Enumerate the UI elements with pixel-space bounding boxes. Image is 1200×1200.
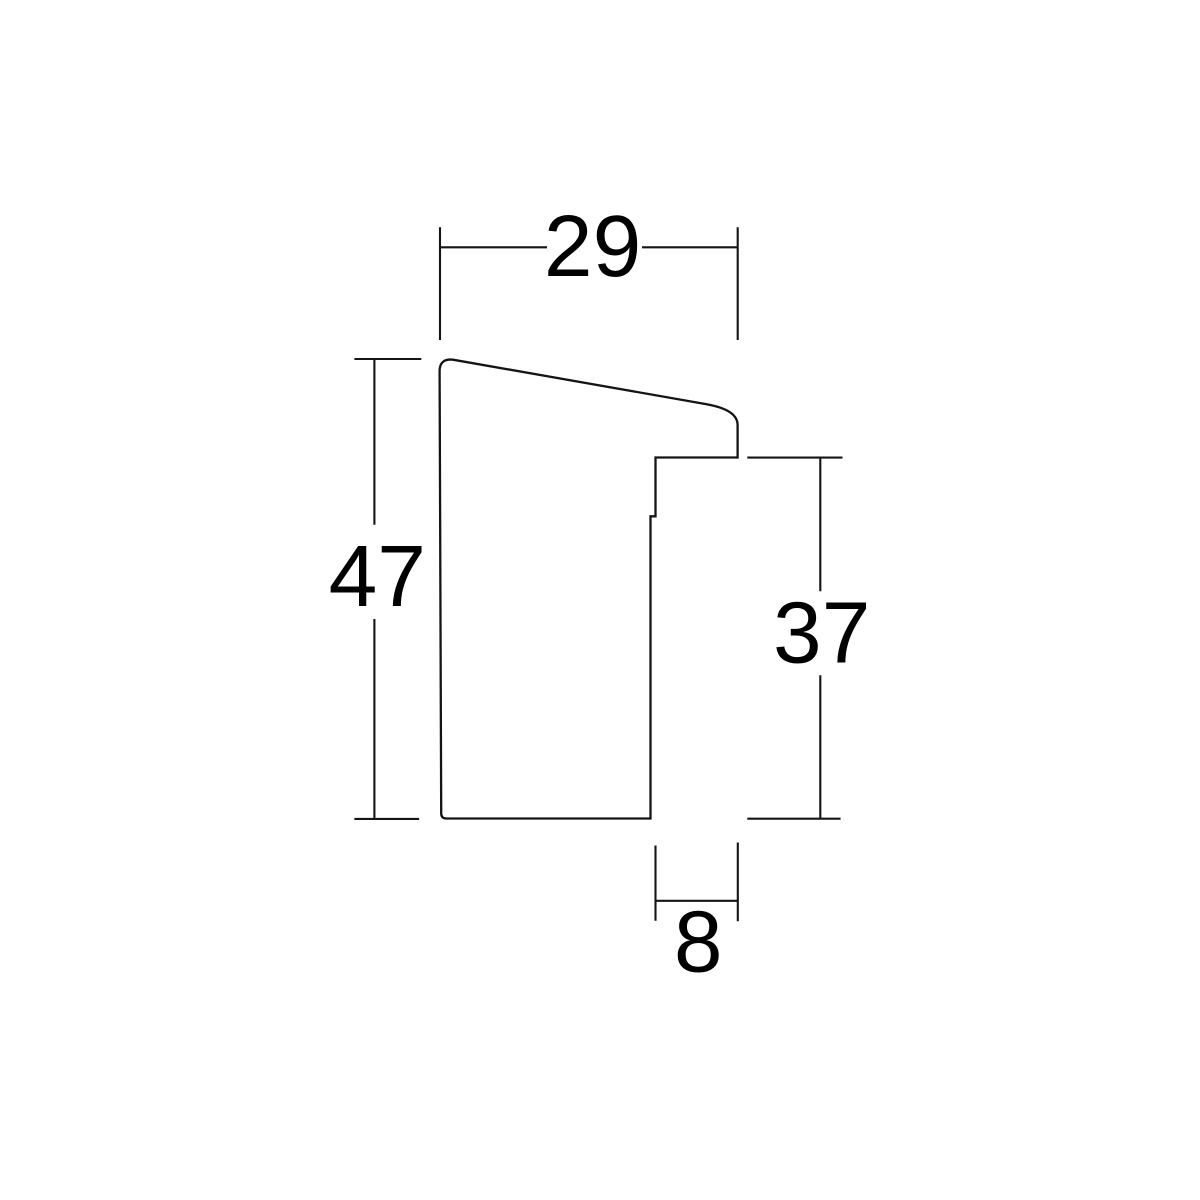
svg-text:37: 37	[773, 584, 870, 682]
svg-text:29: 29	[544, 197, 641, 295]
svg-text:47: 47	[329, 527, 426, 625]
svg-text:8: 8	[674, 893, 723, 991]
